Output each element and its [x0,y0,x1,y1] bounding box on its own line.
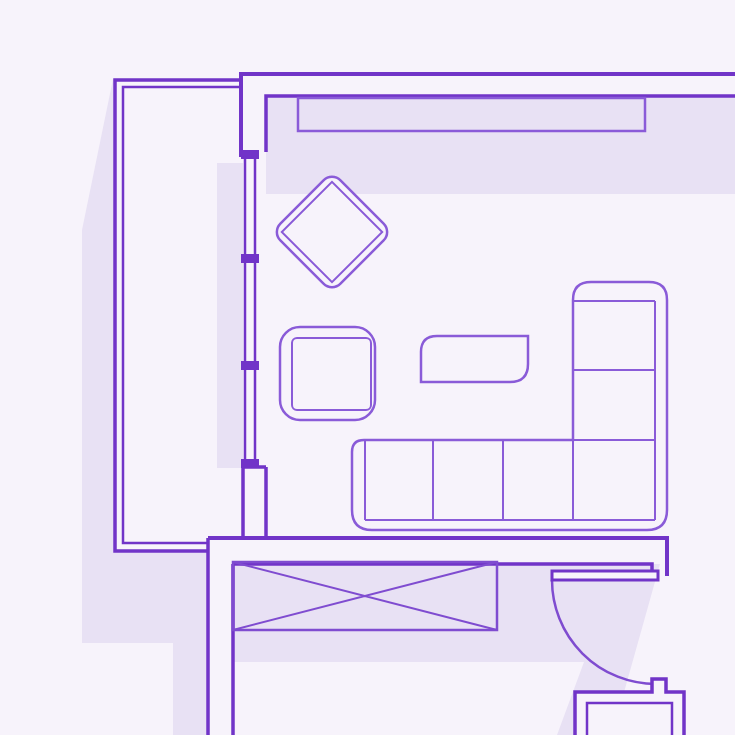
window-mullion-top [241,150,259,159]
floor-plan [0,0,735,735]
coffee-table [421,336,528,382]
window-mullion-mid1 [241,254,259,263]
shadow-left-wing [82,79,208,735]
wall-below-window [243,467,266,538]
door-leaf [552,571,658,580]
appliance-inner [587,703,672,735]
window-glass-lines [245,157,255,464]
wall-left-corridor [208,538,233,735]
floor-plan-svg [0,0,735,735]
armchair-outline [280,327,375,420]
window-mullion-bottom [241,459,259,468]
sofa-outline [352,282,667,530]
window-mullion-mid2 [241,361,259,370]
shadow-balcony-strip [217,163,243,468]
